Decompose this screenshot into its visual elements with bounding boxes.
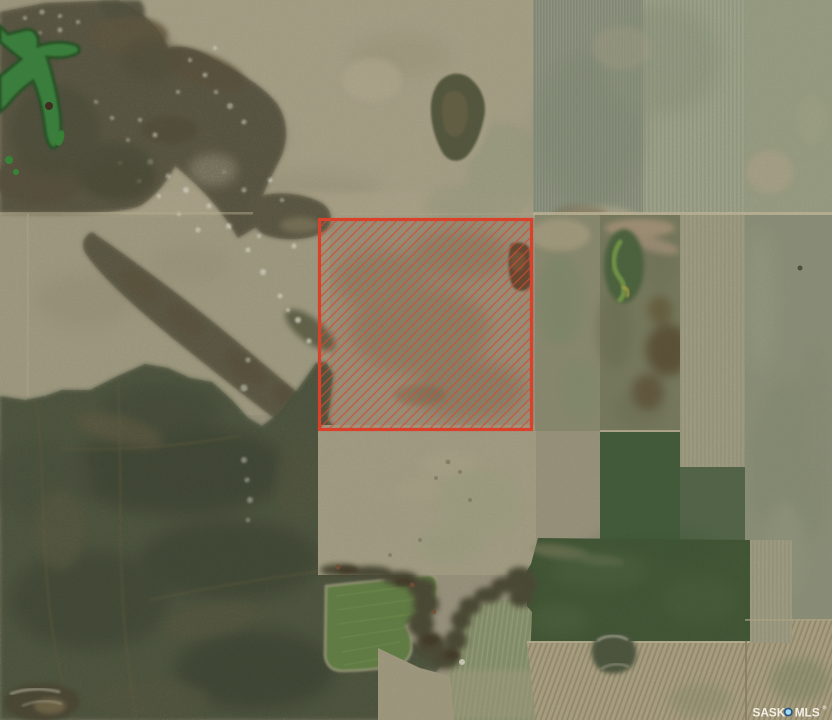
svg-text:SASK: SASK [753, 706, 786, 720]
svg-text:MLS: MLS [795, 706, 820, 720]
